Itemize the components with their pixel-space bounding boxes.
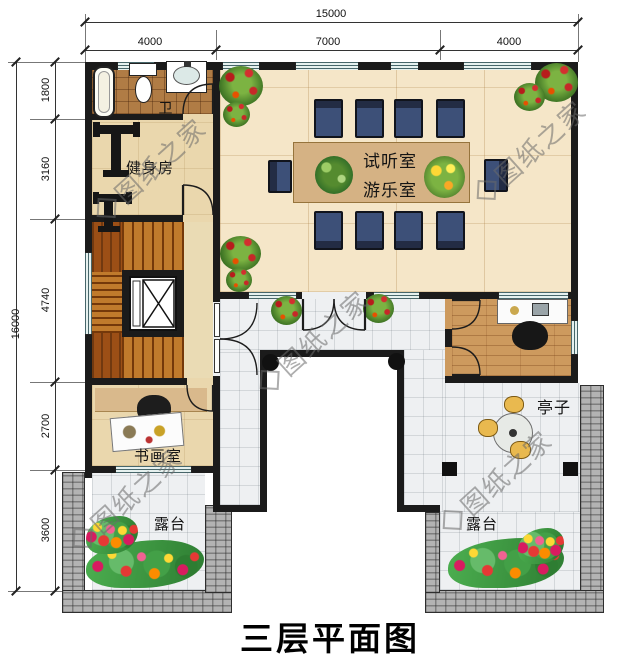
- dim-label-left-seg4: 2700: [40, 405, 52, 447]
- gym-equipment-bar: [95, 125, 138, 134]
- sink-basin: [173, 66, 200, 85]
- door-leaf: [214, 303, 220, 337]
- plant-bush: [220, 236, 261, 271]
- window: [498, 292, 569, 299]
- gym-equipment-foot: [98, 226, 120, 232]
- stair-lower-landing: [92, 333, 122, 378]
- parapet-right-terrace-east: [580, 385, 604, 613]
- door-opening-media: [302, 292, 366, 299]
- office-computer: [532, 303, 549, 316]
- window: [463, 62, 532, 70]
- label-gym: 健身房: [112, 157, 188, 178]
- door-opening-study: [187, 378, 213, 385]
- column-pavilion-right: [563, 462, 578, 476]
- toilet-tank: [129, 63, 157, 76]
- chair: [484, 159, 508, 192]
- dim-label-top-seg2: 7000: [298, 36, 358, 48]
- label-media-2: 游乐室: [352, 176, 428, 201]
- window: [295, 62, 359, 70]
- gym-equipment-cap: [126, 192, 132, 204]
- column-courtyard-left: [262, 354, 279, 371]
- office-chair: [512, 321, 548, 350]
- door-opening-office-b: [445, 347, 452, 376]
- door-opening-gym: [183, 215, 213, 222]
- bathtub-basin: [98, 71, 110, 113]
- floor-corridor-right: [404, 350, 445, 512]
- wall-stairs-study: [85, 378, 187, 385]
- stair-flight-left: [92, 272, 122, 333]
- chair: [355, 99, 384, 138]
- pavilion-table-center: [509, 429, 517, 437]
- label-terrace-right: 露台: [458, 513, 506, 534]
- chair: [314, 99, 343, 138]
- plant-bush: [219, 66, 263, 106]
- parapet-left-terrace-east: [205, 505, 232, 593]
- toilet-bowl: [135, 76, 152, 103]
- stair-flight-bottom: [122, 337, 184, 378]
- column-courtyard-right: [388, 353, 405, 370]
- wall-gym-stairs: [85, 215, 183, 222]
- dim-line-top-total: [85, 22, 579, 23]
- pavilion-chair: [504, 396, 524, 413]
- floor-corridor-left: [220, 350, 260, 505]
- door-opening-office-a: [445, 299, 452, 329]
- column-pavilion-left: [442, 462, 457, 476]
- dim-label-left-seg2: 3160: [40, 148, 52, 190]
- dim-line-top-segments: [85, 50, 579, 51]
- table-plant-green: [315, 156, 353, 194]
- plant-bush: [223, 102, 250, 127]
- label-terrace-left: 露台: [146, 513, 194, 534]
- parapet-left-terrace-south: [62, 590, 232, 613]
- pavilion-chair: [478, 419, 498, 437]
- gym-equipment-bench2: [104, 202, 113, 228]
- extension-line: [30, 470, 88, 471]
- wall-leftwing-mid: [213, 215, 220, 302]
- label-pavilion: 亭子: [532, 394, 576, 418]
- window: [85, 252, 92, 335]
- sink-tap: [184, 61, 191, 67]
- label-bathroom: 卫: [152, 98, 180, 118]
- wall-stub-right: [397, 505, 440, 512]
- chair: [268, 160, 292, 193]
- plan-title: 三层平面图: [195, 612, 465, 660]
- extension-line: [216, 30, 217, 60]
- extension-line: [30, 119, 88, 120]
- gym-equipment-cap: [133, 122, 140, 137]
- wall-courtyard-west: [260, 350, 267, 512]
- chair: [355, 211, 384, 250]
- floor-plan-canvas: 15000 4000 7000 4000 16000 1800 3160 474…: [0, 0, 640, 661]
- wall-leftwing-lower: [213, 376, 220, 512]
- label-media-1: 试听室: [352, 147, 428, 172]
- door-opening-bathroom: [183, 114, 213, 120]
- dim-label-left-seg5: 3600: [40, 509, 52, 551]
- floor-corridor-top: [220, 299, 445, 350]
- dim-label-top-seg3: 4000: [479, 36, 539, 48]
- chair: [394, 99, 423, 138]
- chair: [436, 211, 465, 250]
- wall-office-south: [445, 376, 578, 383]
- elevator-shaft: [122, 270, 184, 337]
- extension-line: [30, 219, 88, 220]
- door-leaf: [214, 339, 220, 373]
- extension-line: [8, 62, 88, 63]
- gym-equipment-cap: [93, 122, 100, 137]
- table-plant-yellow: [424, 156, 465, 198]
- wall-office-west: [445, 329, 452, 347]
- window: [390, 62, 419, 70]
- dim-label-left-seg3: 4740: [40, 279, 52, 321]
- wall-courtyard-east: [397, 350, 404, 512]
- dim-label-left-total: 16000: [10, 298, 22, 350]
- extension-line: [440, 30, 441, 60]
- parapet-right-terrace-west: [425, 512, 440, 593]
- dim-line-left-segments: [55, 62, 56, 591]
- parapet-right-terrace-south: [425, 590, 604, 613]
- label-study: 书画室: [122, 445, 194, 466]
- pavilion-chair: [510, 441, 531, 459]
- plant-bush: [271, 296, 302, 325]
- window: [571, 320, 578, 355]
- extension-line: [30, 382, 88, 383]
- plant-bush: [226, 268, 252, 292]
- bathtub: [93, 66, 115, 118]
- plant-bush: [363, 294, 394, 323]
- wall-stub-left: [213, 505, 267, 512]
- chair: [314, 211, 343, 250]
- wall-courtyard-north: [260, 350, 404, 357]
- chair: [436, 99, 465, 138]
- office-desk-item: [510, 306, 519, 315]
- plant-bush: [514, 83, 545, 111]
- stair-flight-top: [122, 222, 184, 270]
- dim-label-top-seg1: 4000: [120, 36, 180, 48]
- window: [115, 466, 192, 473]
- stair-landing: [184, 222, 213, 378]
- dim-label-left-seg1: 1800: [40, 69, 52, 111]
- chair: [394, 211, 423, 250]
- gym-equipment-cap: [93, 192, 99, 204]
- dim-label-top-total: 15000: [301, 8, 361, 20]
